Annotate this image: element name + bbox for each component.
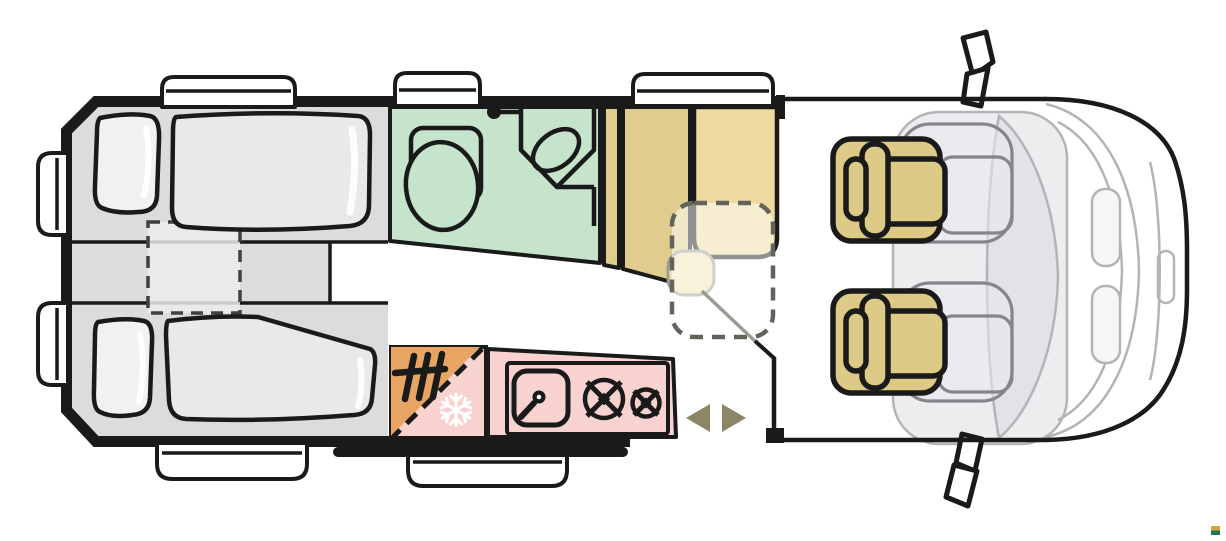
roof-vent-bedroom [162,77,295,107]
sliding-door-arrow-left [686,404,710,432]
logo-green-bar [1211,531,1220,536]
grille-vent-top [1092,189,1120,266]
logo-gold-bar [1211,526,1220,531]
faucet-dot [537,395,542,400]
roof-vent-dinette [633,74,773,106]
side-window-bedroom [157,443,307,479]
rear-bedroom [70,107,388,438]
kitchen [391,347,676,439]
mattress-top [172,113,370,230]
removable-bed-insert-dashed [148,222,240,313]
roof-vent-bathroom [395,73,480,106]
floorplan-canvas [0,0,1226,541]
brand-logo [1211,526,1220,535]
shower-head-icon [487,105,501,119]
cab [777,32,1187,506]
cab-swivel-seat-bottom [833,291,945,393]
sliding-door-rail [333,447,628,457]
partition-diagonal [755,341,775,359]
folding-table-dashed-outline [672,203,773,337]
mattress-bottom-highlight [358,360,362,406]
grille-vent-bottom [1092,286,1120,363]
bathroom [390,105,600,263]
floorplan-page [0,0,1226,541]
rear-window-top [38,153,68,235]
wing-mirror-top [963,32,993,106]
cab-swivel-seat-top [833,139,945,241]
sliding-door-arrow-right [722,404,746,432]
rear-window-bottom [38,303,68,385]
wardrobe-narrow-cabinet [604,107,619,268]
